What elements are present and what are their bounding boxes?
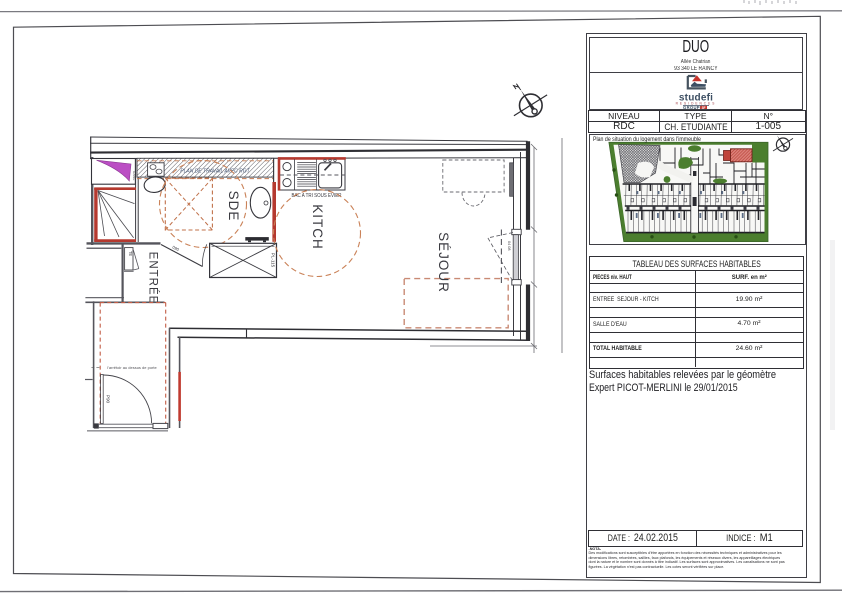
svg-text:GAINE: GAINE (132, 171, 136, 180)
svg-text:04 08: 04 08 (507, 241, 511, 251)
svg-text:TE: TE (128, 251, 133, 257)
svg-text:BAC A TRI SOUS EVIER: BAC A TRI SOUS EVIER (292, 193, 342, 199)
svg-text:3F: 3F (701, 106, 705, 109)
svg-text:l'arrêtoir au dessus de porte: l'arrêtoir au dessus de porte (107, 365, 157, 370)
svg-text:ENTRÉE: ENTRÉE (147, 252, 160, 305)
svg-text:PL-115: PL-115 (271, 253, 276, 268)
svg-text:KITCH: KITCH (310, 204, 325, 250)
svg-text:P90: P90 (106, 395, 111, 404)
svg-text:SÉJOUR: SÉJOUR (436, 232, 451, 293)
svg-text:PLAN DE TRAVAIL AVEC RGT: PLAN DE TRAVAIL AVEC RGT (180, 169, 250, 175)
svg-text:SDE: SDE (226, 191, 241, 222)
svg-text:GROUPE: GROUPE (683, 105, 703, 109)
